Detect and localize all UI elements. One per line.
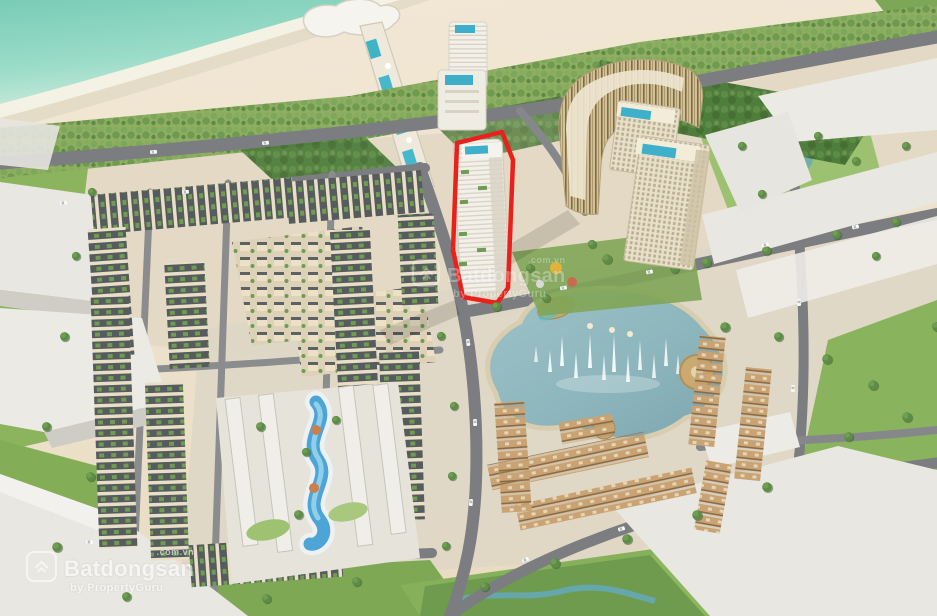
shophouse-row — [398, 213, 439, 307]
highlighted-tower — [453, 139, 510, 294]
podium-building — [438, 70, 486, 130]
clubhouse-lazy-river — [216, 382, 420, 584]
render-canvas — [0, 0, 937, 616]
shophouse-row — [330, 229, 378, 389]
shophouse-row — [164, 261, 209, 369]
shophouse-row — [145, 381, 189, 560]
master-plan-render: .com.vn Batdongsan by PropertyGuru .com.… — [0, 0, 937, 616]
